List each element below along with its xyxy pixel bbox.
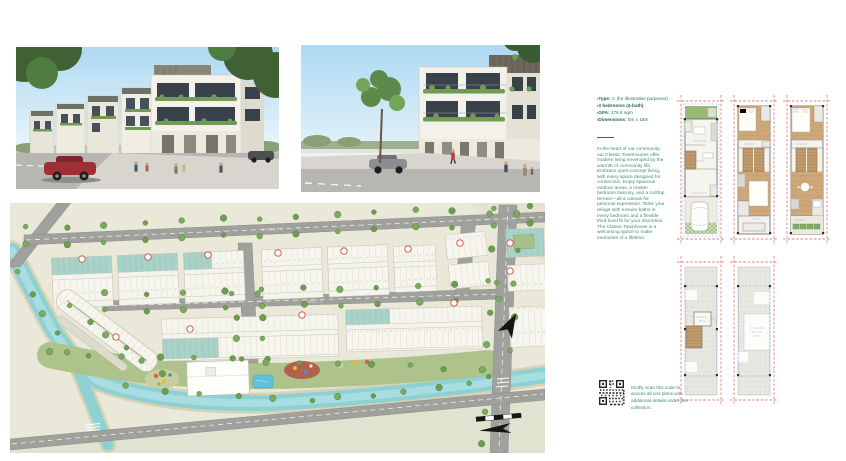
- floor-plan-roof-terrace: [677, 256, 725, 406]
- floor-plan-roof: [730, 256, 778, 406]
- spec-gfa: GFA: 176.6 sqm: [597, 109, 667, 116]
- floor-plan-third: [783, 95, 831, 245]
- car-icon: [691, 202, 708, 231]
- exterior-render-2: [301, 45, 540, 192]
- clubhouse: [186, 360, 249, 396]
- pool: [253, 375, 273, 388]
- exterior-render-1: [16, 47, 279, 189]
- exterior-render-1-image: [16, 47, 279, 189]
- floor-plan-ground: [677, 95, 725, 245]
- unit-spec-list: Type: C (for illustrative purposes) 3 be…: [597, 95, 667, 123]
- site-plan-image: STREET 1 STREET 2: [10, 203, 545, 453]
- master-site-plan: STREET 1 STREET 2: [10, 203, 545, 453]
- unit-description: In the heart of our community, our Class…: [597, 147, 665, 241]
- qr-code: [598, 379, 625, 406]
- exterior-render-2-image: [301, 45, 540, 192]
- spec-type: Type: C (for illustrative purposes): [597, 95, 667, 102]
- floor-plan-second: [730, 95, 778, 245]
- spec-dimensions: Dimensions: 5m x 16m: [597, 116, 667, 123]
- spec-bedrooms: 3 bedrooms (4-bath): [597, 102, 667, 109]
- unit-info: Type: C (for illustrative purposes) 3 be…: [597, 95, 667, 241]
- divider: [597, 137, 614, 138]
- brochure-page: STREET 1 STREET 2: [0, 0, 846, 461]
